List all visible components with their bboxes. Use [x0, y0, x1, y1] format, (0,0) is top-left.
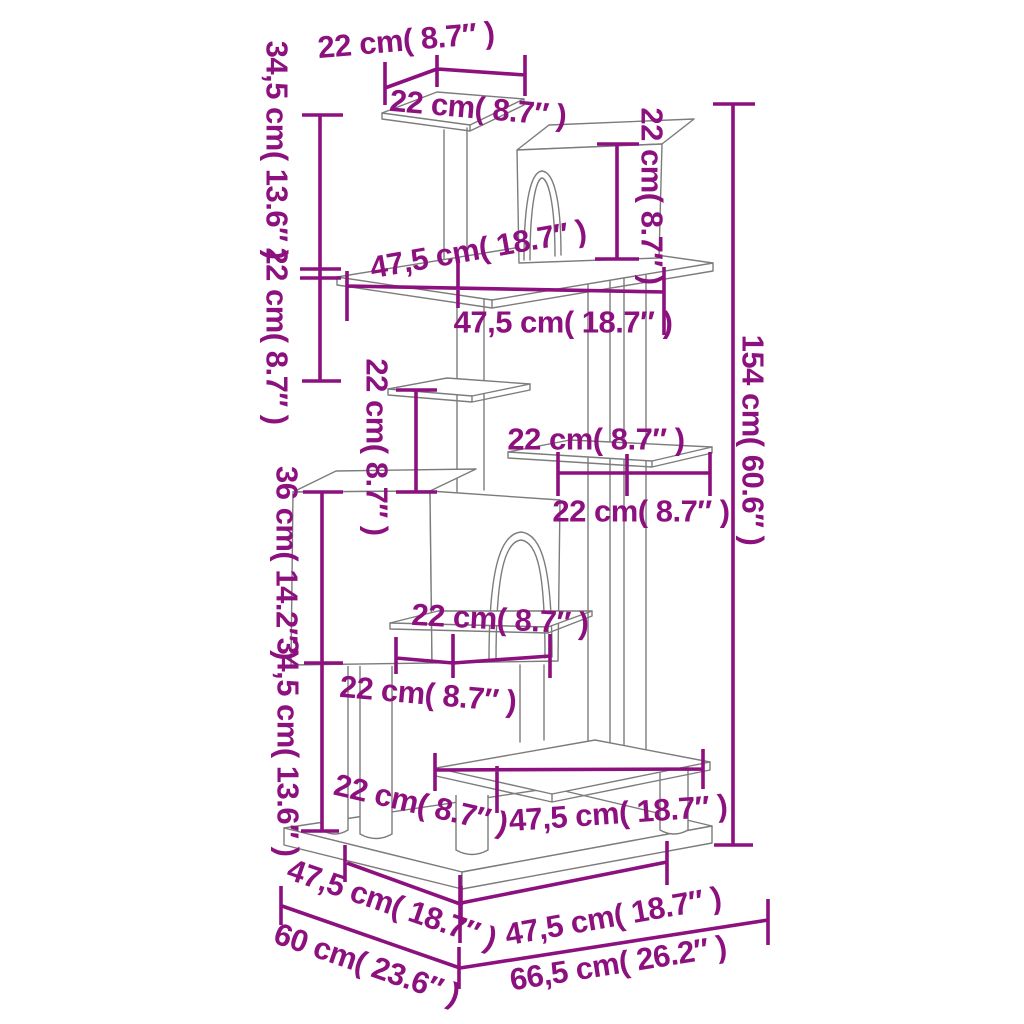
base-post-3	[520, 665, 544, 742]
diagram-canvas: 22 cm( 8.7″ )22 cm( 8.7″ )34,5 cm( 13.6″…	[0, 0, 1024, 1024]
mid-left-shelf	[388, 378, 530, 396]
dim-line-left-upper	[300, 115, 343, 381]
dimension-label-shelfR-width-22: 22 cm( 8.7″ )	[552, 494, 729, 529]
dimension-label-gap-height-22: 22 cm( 8.7″ )	[360, 358, 395, 535]
dimension-label-house2-height-36: 36 cm( 14.2″ )	[270, 466, 305, 660]
dimension-label-left-lower-345: 34,5 cm( 13.6″ )	[271, 638, 306, 857]
dimension-label-total-height-154: 154 cm( 60.6″ )	[736, 335, 771, 546]
dimension-label-plat2-width-475: 47,5 cm( 18.7″ )	[454, 305, 673, 340]
dimension-label-top-width-22: 22 cm( 8.7″ )	[388, 83, 568, 133]
dimension-label-left-upper-22: 22 cm( 8.7″ )	[260, 247, 295, 424]
dimension-label-shelfR-depth-22: 22 cm( 8.7″ )	[507, 422, 684, 457]
dimension-label-house1-height-22: 22 cm( 8.7″ )	[635, 107, 670, 284]
dimension-label-left-upper-345: 34,5 cm( 13.6″ )	[260, 41, 295, 260]
cat-tree-dimension-diagram: 22 cm( 8.7″ )22 cm( 8.7″ )34,5 cm( 13.6″…	[0, 0, 1024, 1024]
dimension-label-top-depth-22: 22 cm( 8.7″ )	[316, 15, 496, 65]
